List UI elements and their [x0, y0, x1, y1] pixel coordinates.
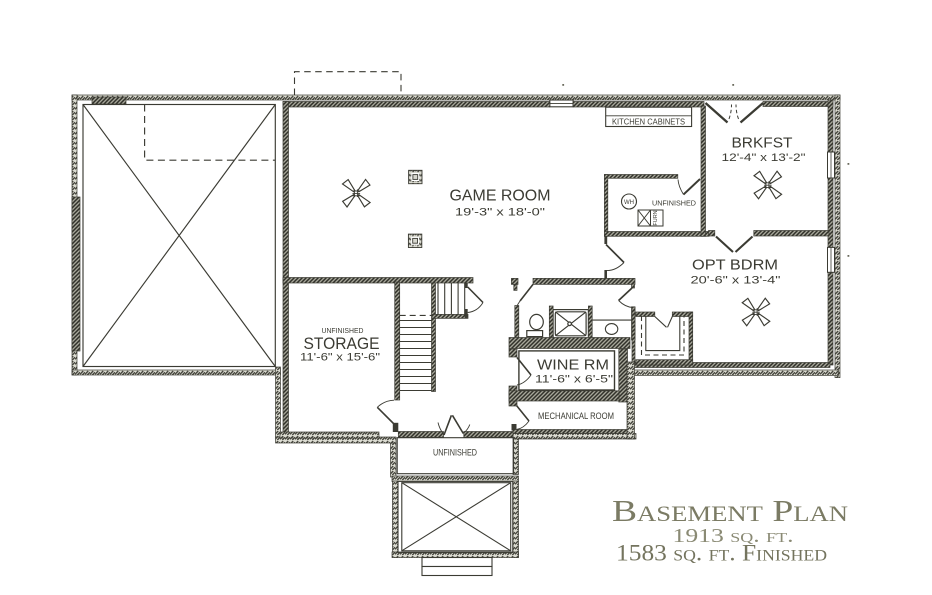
svg-text:19'-3" x 18'-0": 19'-3" x 18'-0": [455, 207, 545, 219]
svg-text:11'-6" x 6'-5": 11'-6" x 6'-5": [535, 374, 613, 386]
svg-text:BRKFST: BRKFST: [732, 134, 793, 151]
svg-text:11'-6" x 15'-6": 11'-6" x 15'-6": [300, 352, 380, 364]
svg-text:WH: WH: [624, 200, 634, 206]
svg-text:UNFINISHED: UNFINISHED: [433, 447, 477, 457]
svg-text:20'-6" x 13'-4": 20'-6" x 13'-4": [691, 274, 781, 286]
svg-text:GAME ROOM: GAME ROOM: [450, 188, 551, 205]
svg-text:Basement Plan: Basement Plan: [612, 493, 848, 528]
svg-text:FURN: FURN: [653, 210, 659, 225]
svg-text:STORAGE: STORAGE: [304, 334, 380, 353]
svg-text:1583 sq. ft. Finished: 1583 sq. ft. Finished: [616, 541, 827, 566]
svg-text:MECHANICAL ROOM: MECHANICAL ROOM: [538, 411, 614, 421]
svg-text:WINE RM: WINE RM: [537, 357, 609, 374]
svg-text:UNFINISHED: UNFINISHED: [652, 198, 696, 207]
svg-text:KITCHEN CABINETS: KITCHEN CABINETS: [612, 118, 685, 127]
svg-text:12'-4" x 13'-2": 12'-4" x 13'-2": [722, 152, 806, 164]
svg-text:OPT BDRM: OPT BDRM: [692, 256, 778, 273]
